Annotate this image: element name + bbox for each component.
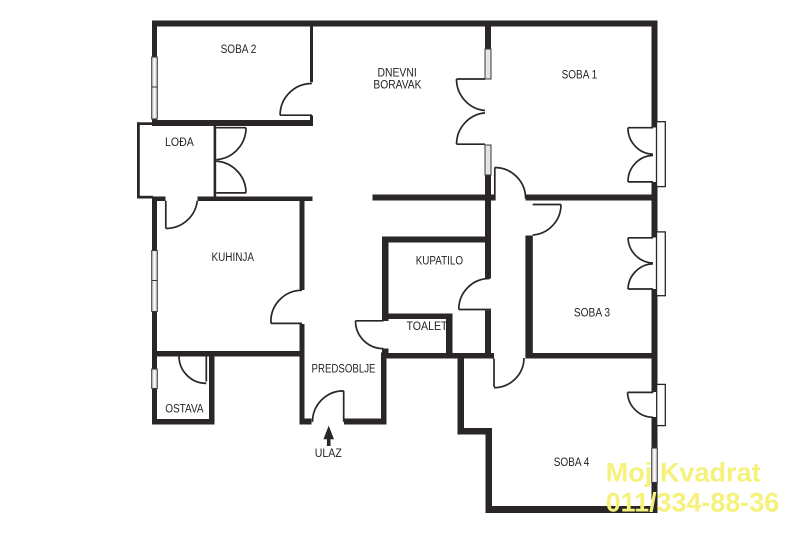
svg-text:SOBA 1: SOBA 1 (562, 70, 598, 82)
svg-text:PREDSOBLJE: PREDSOBLJE (312, 364, 376, 376)
svg-text:Moj Kvadrat: Moj Kvadrat (606, 458, 761, 488)
svg-text:BORAVAK: BORAVAK (373, 80, 421, 92)
svg-text:LOĐA: LOĐA (165, 137, 194, 149)
svg-text:KUHINJA: KUHINJA (212, 252, 255, 264)
svg-text:OSTAVA: OSTAVA (165, 404, 204, 416)
svg-text:SOBA 3: SOBA 3 (574, 307, 610, 319)
svg-text:SOBA 2: SOBA 2 (221, 44, 257, 56)
svg-text:ULAZ: ULAZ (315, 448, 342, 460)
svg-text:SOBA 4: SOBA 4 (554, 457, 590, 469)
svg-text:KUPATILO: KUPATILO (416, 256, 463, 268)
svg-text:011/334-88-36: 011/334-88-36 (606, 488, 780, 518)
svg-text:TOALET: TOALET (407, 321, 448, 333)
svg-text:DNEVNI: DNEVNI (378, 67, 417, 79)
